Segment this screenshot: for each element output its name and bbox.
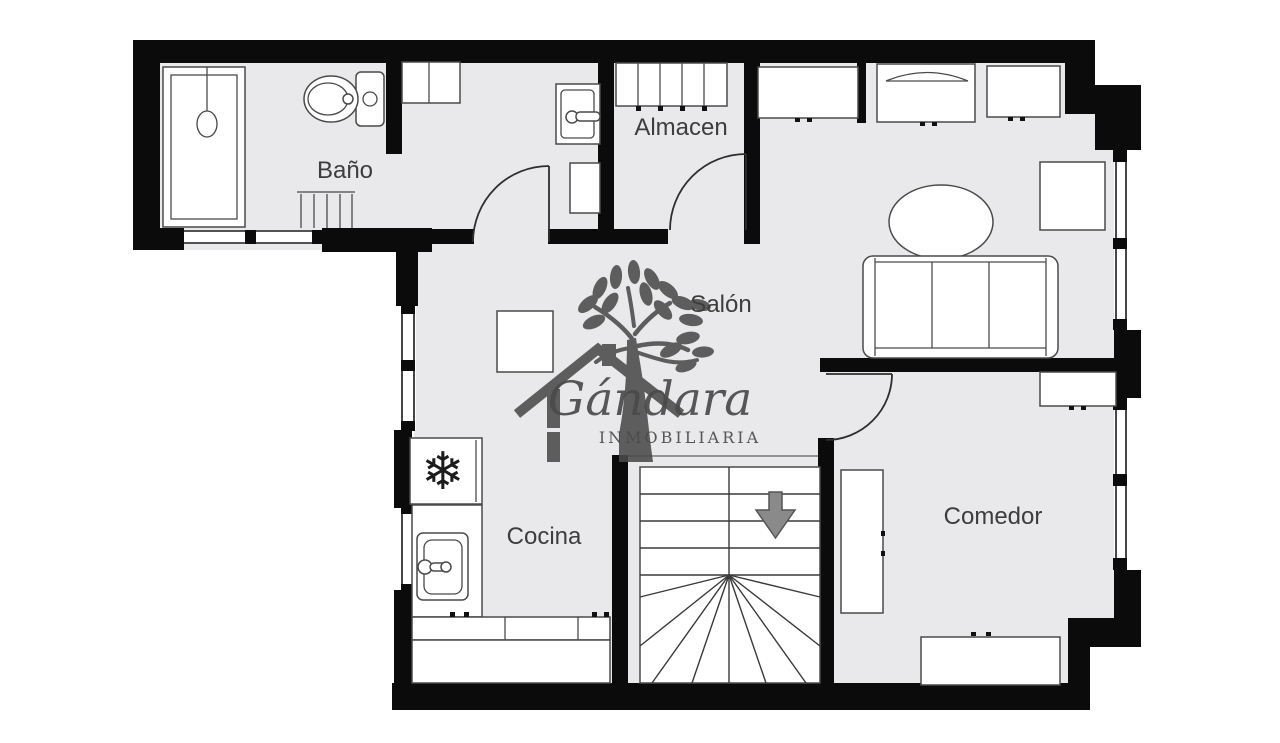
room-label-storage: Almacen — [634, 114, 727, 142]
storage-shelves — [616, 63, 727, 111]
refrigerator: ❄ — [410, 438, 482, 504]
room-label-living-room: Salón — [690, 291, 751, 319]
room-label-kitchen: Cocina — [507, 523, 582, 551]
dining-sideboard — [841, 470, 885, 613]
kitchen-counter-bottom — [412, 612, 610, 683]
window-east-upper — [1113, 150, 1128, 330]
salon-wall-cabinet-center — [877, 64, 975, 126]
watermark-brand-text: Gándara — [548, 372, 752, 427]
shower — [163, 67, 245, 227]
bathroom-sink — [556, 84, 600, 144]
dining-cabinet — [921, 632, 1060, 685]
salon-square-table — [497, 311, 553, 372]
sofa — [863, 256, 1058, 358]
side-table — [1040, 162, 1105, 230]
bathroom-wall-cabinet — [402, 62, 460, 103]
salon-wall-cabinet-right — [987, 66, 1060, 121]
room-label-bathroom: Baño — [317, 157, 373, 185]
kitchen-sink — [417, 533, 468, 600]
watermark-subtitle-text: INMOBILIARIA — [599, 428, 761, 447]
floor-plan: ❄ — [0, 0, 1280, 743]
window-west-upper — [400, 304, 416, 431]
toilet — [304, 72, 384, 126]
snowflake-icon: ❄ — [421, 442, 465, 502]
room-label-dining-room: Comedor — [944, 503, 1043, 531]
salon-wall-cabinet-left — [758, 67, 858, 122]
bathroom-low-unit — [570, 163, 600, 213]
coffee-table — [889, 185, 993, 259]
window-bathroom-south — [173, 230, 322, 244]
salon-low-cabinet — [1040, 372, 1116, 410]
staircase — [628, 456, 820, 683]
window-east-lower — [1113, 398, 1128, 570]
